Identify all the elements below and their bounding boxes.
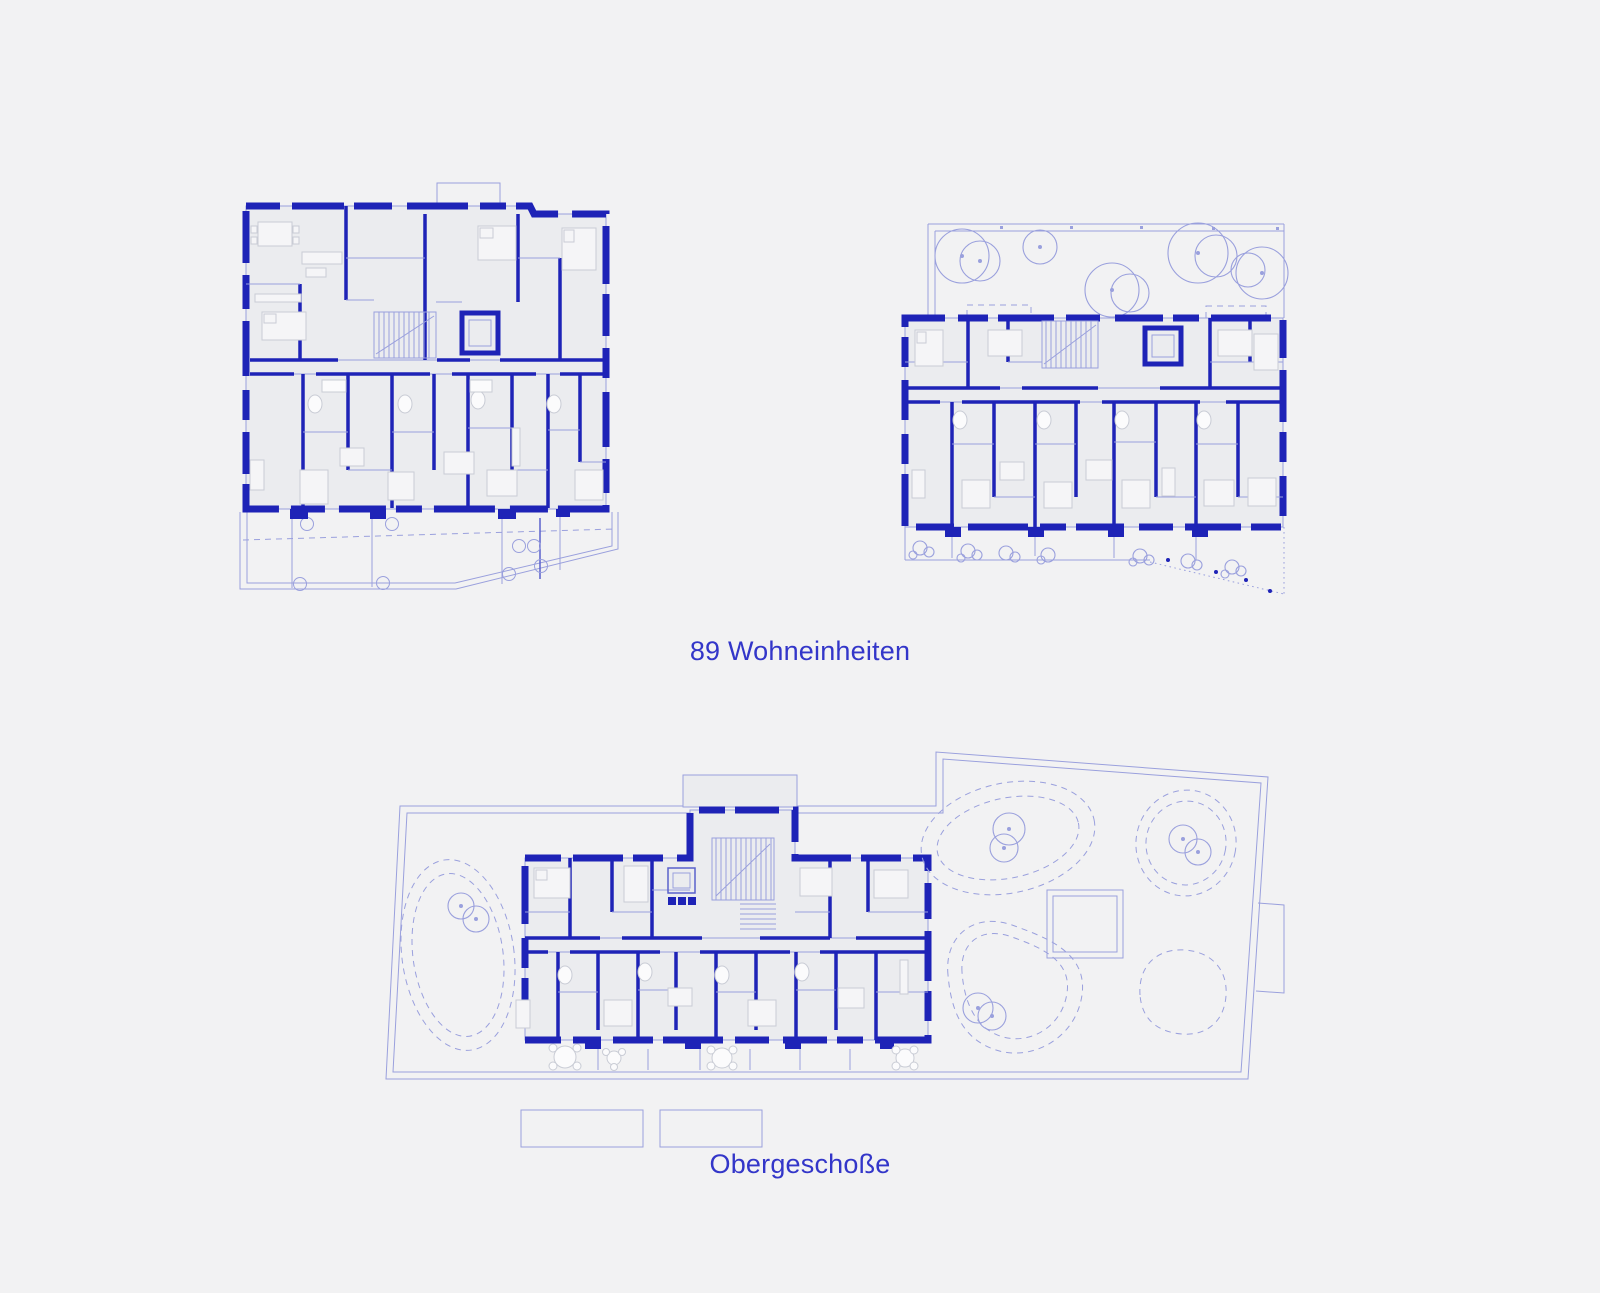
plan-c-right-planting-beds — [910, 766, 1244, 1053]
plan-c-legend-boxes — [521, 1110, 762, 1147]
floor-name-label: Obergeschoße — [710, 1149, 891, 1180]
plan-c-left-planting-bed — [389, 852, 527, 1058]
units-count-label: 89 Wohneinheiten — [690, 636, 910, 667]
plan-c-patio — [549, 1044, 918, 1071]
floor-plan-bottom — [386, 752, 1284, 1147]
legend-box-1 — [521, 1110, 643, 1147]
legend-box-2 — [660, 1110, 762, 1147]
plan-b-garden — [905, 527, 1284, 594]
floor-plan-top-right — [905, 223, 1288, 594]
site-plan-page: { "page": { "background": "#f2f2f3" }, "… — [0, 0, 1600, 1293]
plan-b-trees — [935, 223, 1288, 317]
floor-plan-top-left — [240, 183, 618, 591]
